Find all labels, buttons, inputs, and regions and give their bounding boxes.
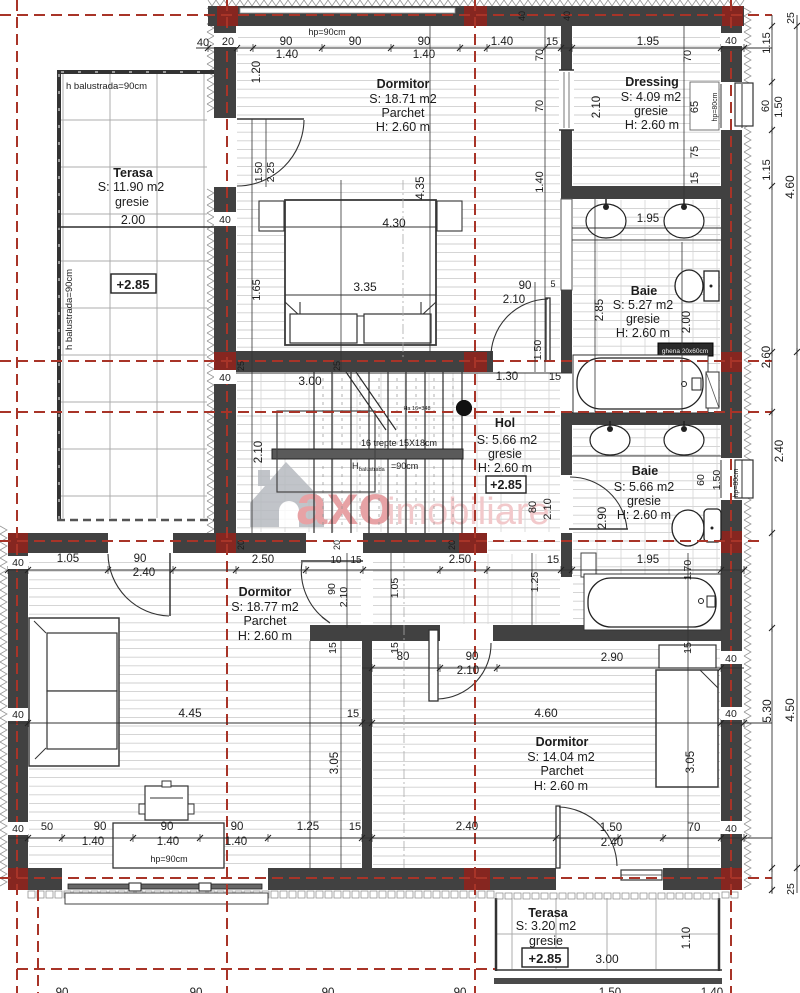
svg-text:3.35: 3.35 [353,280,377,294]
svg-text:Terasa: Terasa [113,166,153,180]
svg-text:90: 90 [231,821,244,833]
svg-text:4.50: 4.50 [783,698,797,722]
svg-text:2.40: 2.40 [456,821,478,833]
svg-text:S: 3.20 m2: S: 3.20 m2 [516,919,576,933]
svg-text:40: 40 [12,709,24,721]
svg-text:S: 5.66 m2: S: 5.66 m2 [614,480,674,494]
svg-text:imobiliare: imobiliare [387,491,550,533]
svg-text:75: 75 [689,146,701,158]
svg-text:H: 2.60 m: H: 2.60 m [625,118,679,132]
svg-text:40: 40 [725,653,737,665]
svg-text:5: 5 [550,279,555,289]
svg-text:40: 40 [219,214,231,226]
svg-text:S: 5.66 m2: S: 5.66 m2 [477,433,537,447]
svg-text:1.15: 1.15 [761,32,773,53]
svg-text:2.10: 2.10 [503,294,525,306]
svg-text:2.60: 2.60 [761,346,773,368]
svg-text:Baie: Baie [631,284,657,298]
svg-text:1.95: 1.95 [637,36,659,48]
svg-text:S: 5.27 m2: S: 5.27 m2 [613,298,673,312]
svg-text:1.25: 1.25 [529,572,541,593]
svg-text:50: 50 [41,821,53,833]
svg-text:Dormitor: Dormitor [239,585,292,599]
svg-text:ghena 20x60cm: ghena 20x60cm [662,348,708,355]
svg-text:1.70: 1.70 [682,560,694,581]
svg-text:2.50: 2.50 [449,554,471,566]
svg-text:90: 90 [349,36,362,48]
svg-text:2.90: 2.90 [601,652,623,664]
svg-text:2.10: 2.10 [542,498,554,519]
svg-text:90: 90 [56,987,69,993]
svg-text:hp=80cm: hp=80cm [712,92,719,121]
svg-text:H: 2.60 m: H: 2.60 m [238,629,292,643]
svg-text:1.30: 1.30 [496,371,518,383]
svg-text:Parchet: Parchet [243,614,287,628]
svg-text:90: 90 [94,821,107,833]
svg-text:1.40: 1.40 [157,836,179,848]
svg-text:1.65: 1.65 [251,279,263,300]
svg-text:1.05: 1.05 [389,578,401,599]
svg-text:H: H [352,461,359,471]
svg-text:90: 90 [466,651,479,663]
svg-text:40: 40 [12,823,24,835]
svg-text:balustrada: balustrada [359,467,386,473]
svg-text:1.15: 1.15 [761,159,773,180]
svg-text:3.05: 3.05 [685,751,697,773]
svg-text:90: 90 [322,987,335,993]
svg-text:2.40: 2.40 [601,837,623,849]
svg-text:4.60: 4.60 [534,706,558,720]
svg-text:gresie: gresie [529,934,563,948]
svg-text:15: 15 [327,642,339,654]
svg-text:25: 25 [785,12,797,24]
svg-text:20: 20 [447,540,457,550]
svg-text:1.20: 1.20 [251,61,263,83]
svg-text:20: 20 [236,540,246,550]
svg-text:2.10: 2.10 [338,587,350,608]
svg-text:2.00: 2.00 [121,213,145,227]
svg-text:1.40: 1.40 [82,836,104,848]
svg-text:90: 90 [134,553,147,565]
svg-text:15: 15 [547,554,559,566]
svg-text:15: 15 [549,371,561,383]
svg-text:90: 90 [454,987,467,993]
svg-text:Parchet: Parchet [540,764,584,778]
svg-text:2.85: 2.85 [594,299,606,321]
svg-text:1.95: 1.95 [637,213,659,225]
svg-text:2.40: 2.40 [774,440,786,462]
svg-text:H: 2.60 m: H: 2.60 m [478,461,532,475]
svg-text:S: 14.04 m2: S: 14.04 m2 [527,750,594,764]
svg-text:2.25: 2.25 [265,162,277,183]
svg-text:1.40: 1.40 [491,36,513,48]
svg-text:60: 60 [760,100,772,112]
svg-text:H: 2.60 m: H: 2.60 m [376,120,430,134]
svg-text:4.35: 4.35 [413,176,427,200]
svg-text:S: 18.71 m2: S: 18.71 m2 [369,92,436,106]
svg-text:gresie: gresie [634,104,668,118]
svg-text:1.40: 1.40 [534,171,546,192]
svg-text:1.10: 1.10 [681,927,693,949]
svg-text:1.40: 1.40 [276,49,298,61]
svg-text:+2.85: +2.85 [529,951,562,966]
svg-text:1.40: 1.40 [413,49,435,61]
svg-text:10: 10 [330,555,342,566]
svg-text:90: 90 [280,36,293,48]
svg-text:Dormitor: Dormitor [536,735,589,749]
svg-text:15: 15 [546,36,558,48]
svg-text:1.40: 1.40 [701,987,723,993]
svg-text:2.40: 2.40 [133,567,155,579]
svg-text:hp=90cm: hp=90cm [308,27,345,37]
svg-text:90: 90 [161,821,174,833]
svg-text:Dormitor: Dormitor [377,77,430,91]
svg-text:3.00: 3.00 [595,952,619,966]
svg-text:2.10: 2.10 [591,96,603,118]
svg-text:40: 40 [725,823,737,835]
svg-text:Ha 16=348: Ha 16=348 [403,406,430,412]
svg-text:2.50: 2.50 [252,554,274,566]
svg-text:3.00: 3.00 [298,374,322,388]
svg-text:90: 90 [190,987,203,993]
svg-text:gresie: gresie [488,447,522,461]
svg-text:90: 90 [519,280,532,292]
svg-text:1.50: 1.50 [599,987,621,993]
svg-text:80: 80 [527,501,539,513]
svg-text:Baie: Baie [632,464,658,478]
svg-text:gresie: gresie [627,494,661,508]
svg-text:gresie: gresie [115,195,149,209]
svg-text:60: 60 [695,474,707,486]
svg-text:40: 40 [725,708,737,720]
svg-text:h balustrada=90cm: h balustrada=90cm [66,81,147,92]
svg-text:90: 90 [326,583,338,595]
svg-text:H: 2.60 m: H: 2.60 m [534,779,588,793]
svg-text:hp=90cm: hp=90cm [150,854,187,864]
svg-text:4.60: 4.60 [783,175,797,199]
svg-text:40: 40 [562,11,572,21]
svg-text:40: 40 [725,35,737,47]
svg-text:2.90: 2.90 [597,507,609,529]
svg-text:S: 18.77 m2: S: 18.77 m2 [231,600,298,614]
svg-text:1.25: 1.25 [297,821,319,833]
svg-text:15: 15 [350,555,362,566]
svg-text:40: 40 [197,37,209,49]
svg-text:25: 25 [332,361,342,371]
svg-text:15: 15 [347,708,359,720]
svg-text:1.40: 1.40 [225,836,247,848]
svg-text:+2.85: +2.85 [117,277,150,292]
svg-text:90: 90 [418,36,431,48]
svg-text:70: 70 [534,49,546,61]
svg-text:1.50: 1.50 [773,96,785,117]
svg-text:axo: axo [296,473,393,536]
svg-text:Terasa: Terasa [528,906,568,920]
svg-text:Dressing: Dressing [625,75,679,89]
svg-text:65: 65 [689,101,701,113]
svg-text:70: 70 [534,100,546,112]
svg-text:S: 11.90 m2: S: 11.90 m2 [98,180,165,194]
svg-text:15: 15 [389,642,401,654]
svg-text:1.50: 1.50 [532,340,544,361]
svg-text:15: 15 [689,172,701,184]
svg-text:70: 70 [682,50,694,62]
svg-text:h balustrada=90cm: h balustrada=90cm [64,269,75,350]
svg-text:hp=80cm: hp=80cm [733,468,740,497]
svg-text:+2.85: +2.85 [490,478,522,492]
svg-text:3.05: 3.05 [329,752,341,774]
svg-text:40: 40 [219,372,231,384]
svg-text:Hol: Hol [495,416,515,430]
svg-text:40: 40 [517,11,527,21]
svg-text:15: 15 [682,642,694,654]
svg-text:H: 2.60 m: H: 2.60 m [617,508,671,522]
svg-text:20: 20 [222,36,234,48]
svg-text:H: 2.60 m: H: 2.60 m [616,326,670,340]
svg-text:1.50: 1.50 [711,470,723,491]
svg-text:25: 25 [785,883,797,895]
svg-text:2.00: 2.00 [681,311,693,333]
svg-text:1.50: 1.50 [600,822,622,834]
svg-text:=90cm: =90cm [391,461,418,471]
svg-text:1.50: 1.50 [253,162,265,183]
svg-text:20: 20 [332,540,342,550]
svg-text:1.05: 1.05 [57,553,79,565]
svg-text:Parchet: Parchet [381,106,425,120]
svg-text:15: 15 [349,821,361,833]
svg-text:4.30: 4.30 [382,216,406,230]
svg-text:25: 25 [236,361,246,371]
svg-text:40: 40 [12,557,24,569]
svg-text:70: 70 [688,822,701,834]
svg-text:gresie: gresie [626,312,660,326]
svg-text:4.45: 4.45 [178,706,202,720]
svg-text:2.10: 2.10 [253,441,265,463]
svg-text:5.30: 5.30 [760,699,774,723]
svg-text:1.95: 1.95 [637,554,659,566]
svg-text:16 trepte 15X18cm: 16 trepte 15X18cm [361,438,437,448]
svg-text:2.10: 2.10 [457,665,479,677]
svg-text:S: 4.09 m2: S: 4.09 m2 [621,90,681,104]
